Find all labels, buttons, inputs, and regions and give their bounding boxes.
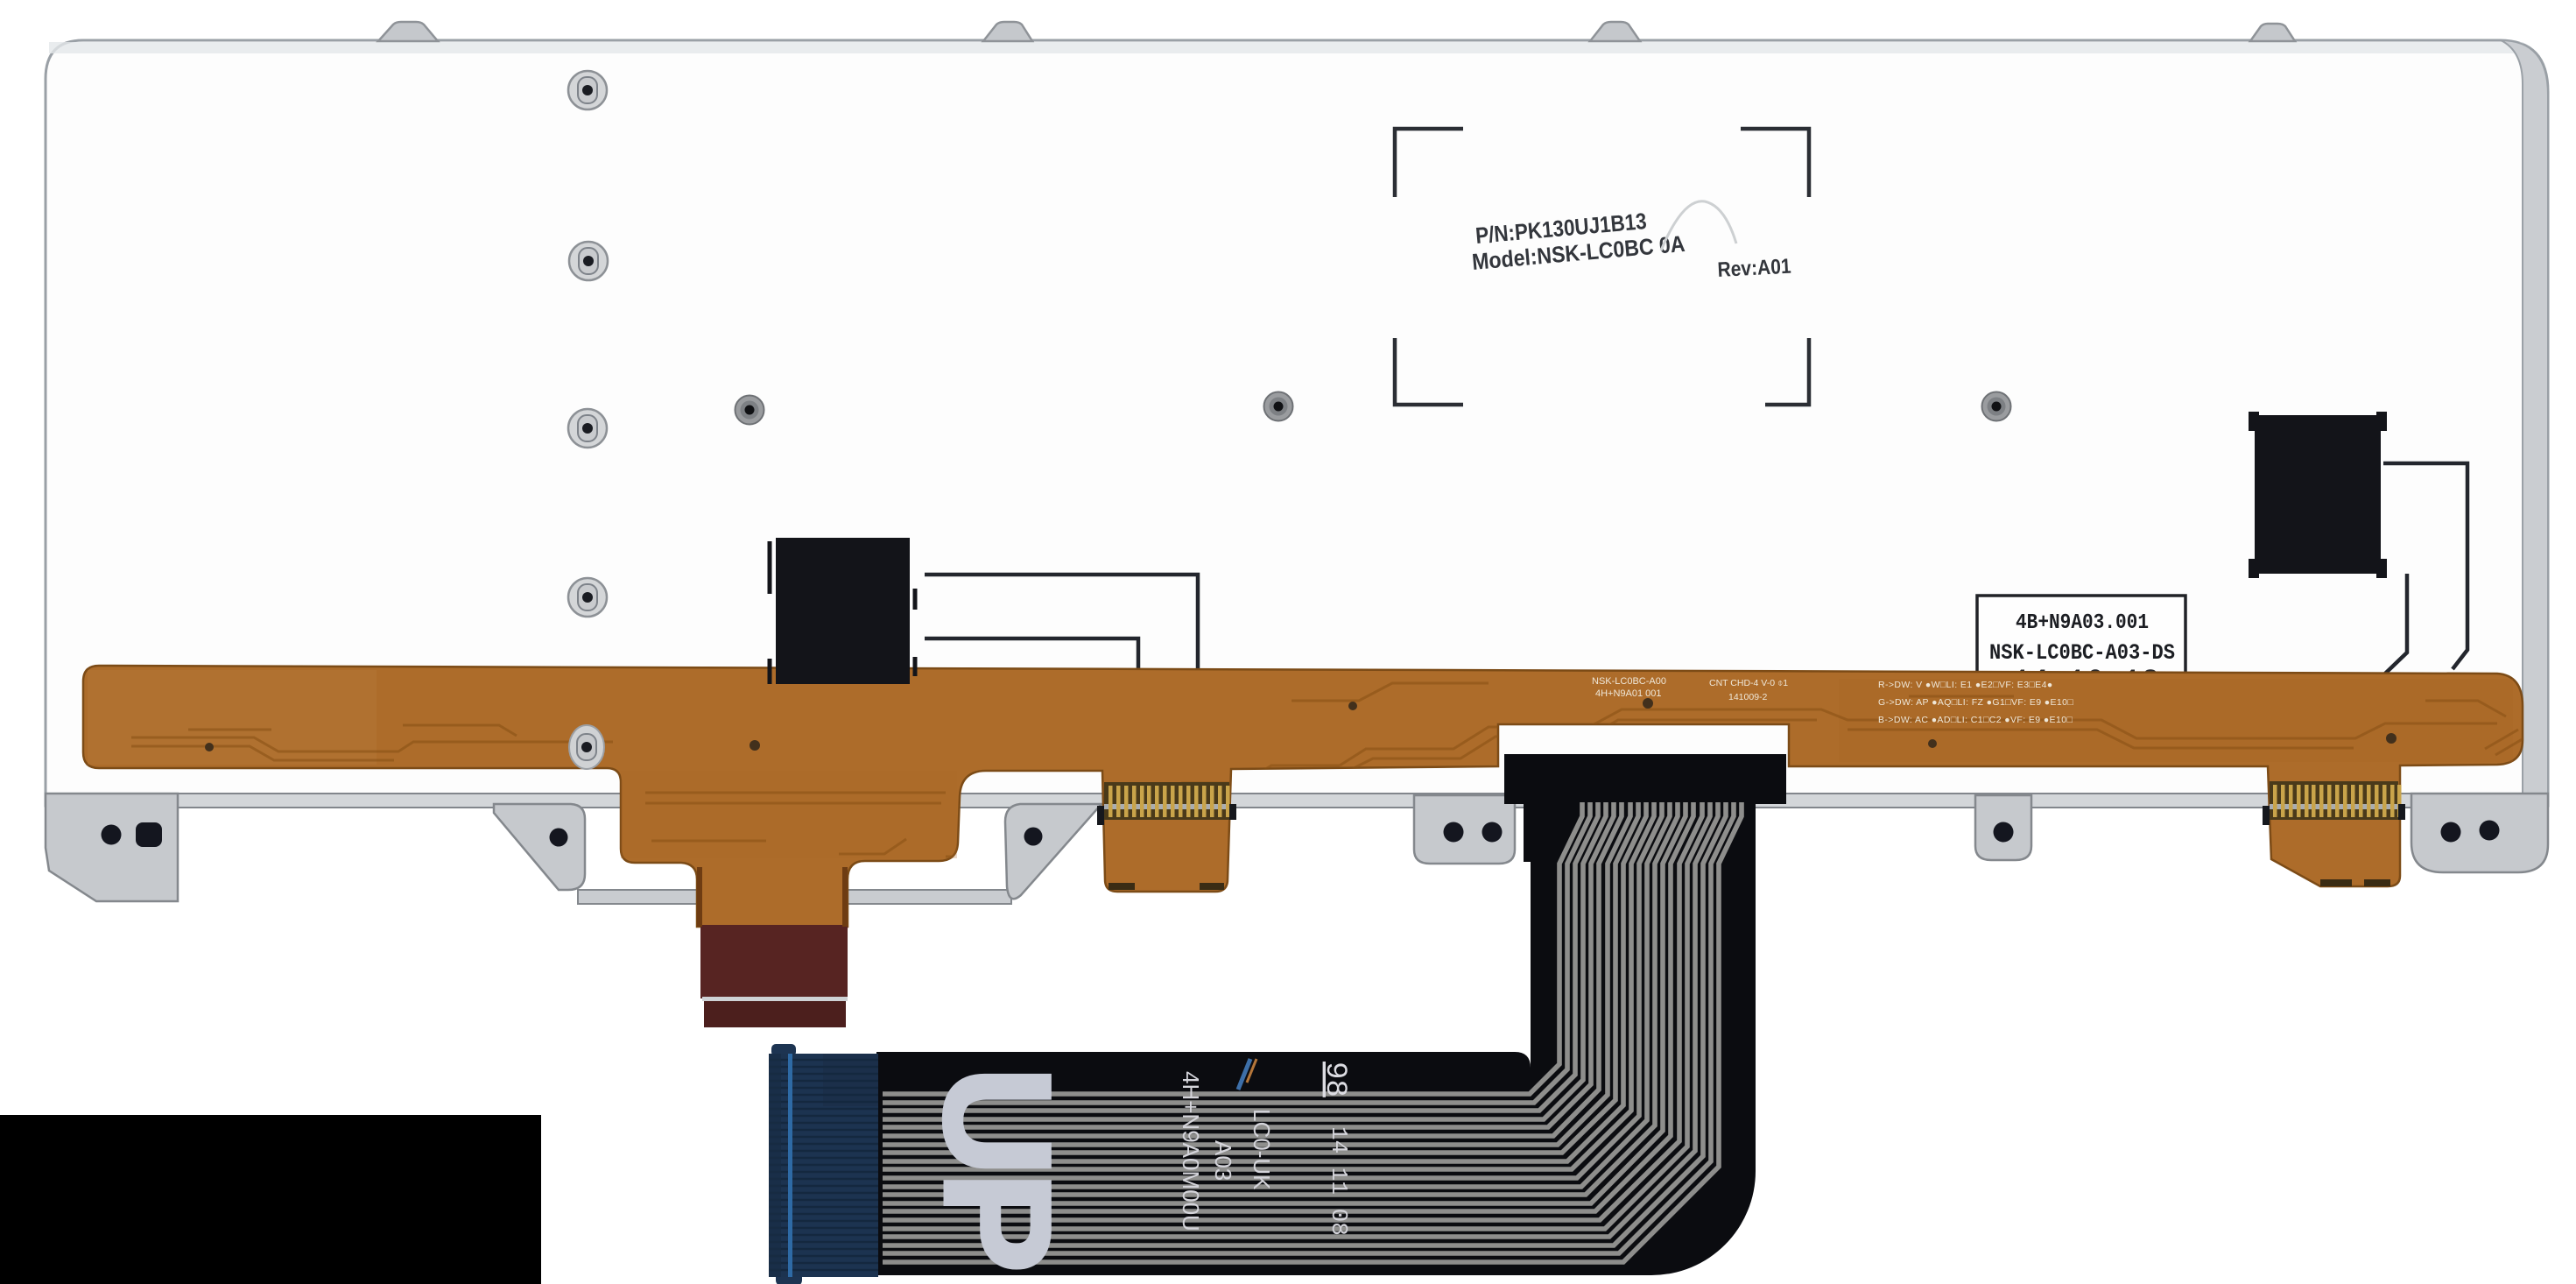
svg-text:98: 98 bbox=[1318, 1062, 1351, 1097]
svg-text:141009-2: 141009-2 bbox=[1728, 692, 1768, 702]
svg-text:UP: UP bbox=[913, 1067, 1081, 1269]
svg-text:NSK-LC0BC-A00: NSK-LC0BC-A00 bbox=[1592, 676, 1666, 687]
svg-text:4H+N9A0M00U: 4H+N9A0M00U bbox=[1178, 1071, 1204, 1231]
svg-text:CNT CHD-4 V-0 ⌽1: CNT CHD-4 V-0 ⌽1 bbox=[1709, 678, 1788, 688]
svg-text:R->DW: V ●W□LI: E1 ●E2□VF: E3□: R->DW: V ●W□LI: E1 ●E2□VF: E3□E4● bbox=[1878, 680, 2053, 690]
svg-text:B->DW: AC ●AD□LI: C1□C2 ●VF: E: B->DW: AC ●AD□LI: C1□C2 ●VF: E9 ●E10□ bbox=[1878, 715, 2073, 725]
svg-text:LC0-UK: LC0-UK bbox=[1249, 1109, 1275, 1190]
svg-text:14 11 08: 14 11 08 bbox=[1326, 1126, 1352, 1236]
svg-text:4H+N9A01 001: 4H+N9A01 001 bbox=[1595, 688, 1662, 699]
svg-text:NSK-LC0BC-A03-DS: NSK-LC0BC-A03-DS bbox=[1989, 640, 2175, 666]
svg-text:A03: A03 bbox=[1210, 1140, 1236, 1181]
svg-text:4B+N9A03.001: 4B+N9A03.001 bbox=[2016, 611, 2149, 635]
svg-text:G->DW: AP ●AQ□LI: FZ ●G1□VF: E: G->DW: AP ●AQ□LI: FZ ●G1□VF: E9 ●E10□ bbox=[1878, 697, 2073, 708]
svg-text:Rev:A01: Rev:A01 bbox=[1717, 255, 1791, 282]
